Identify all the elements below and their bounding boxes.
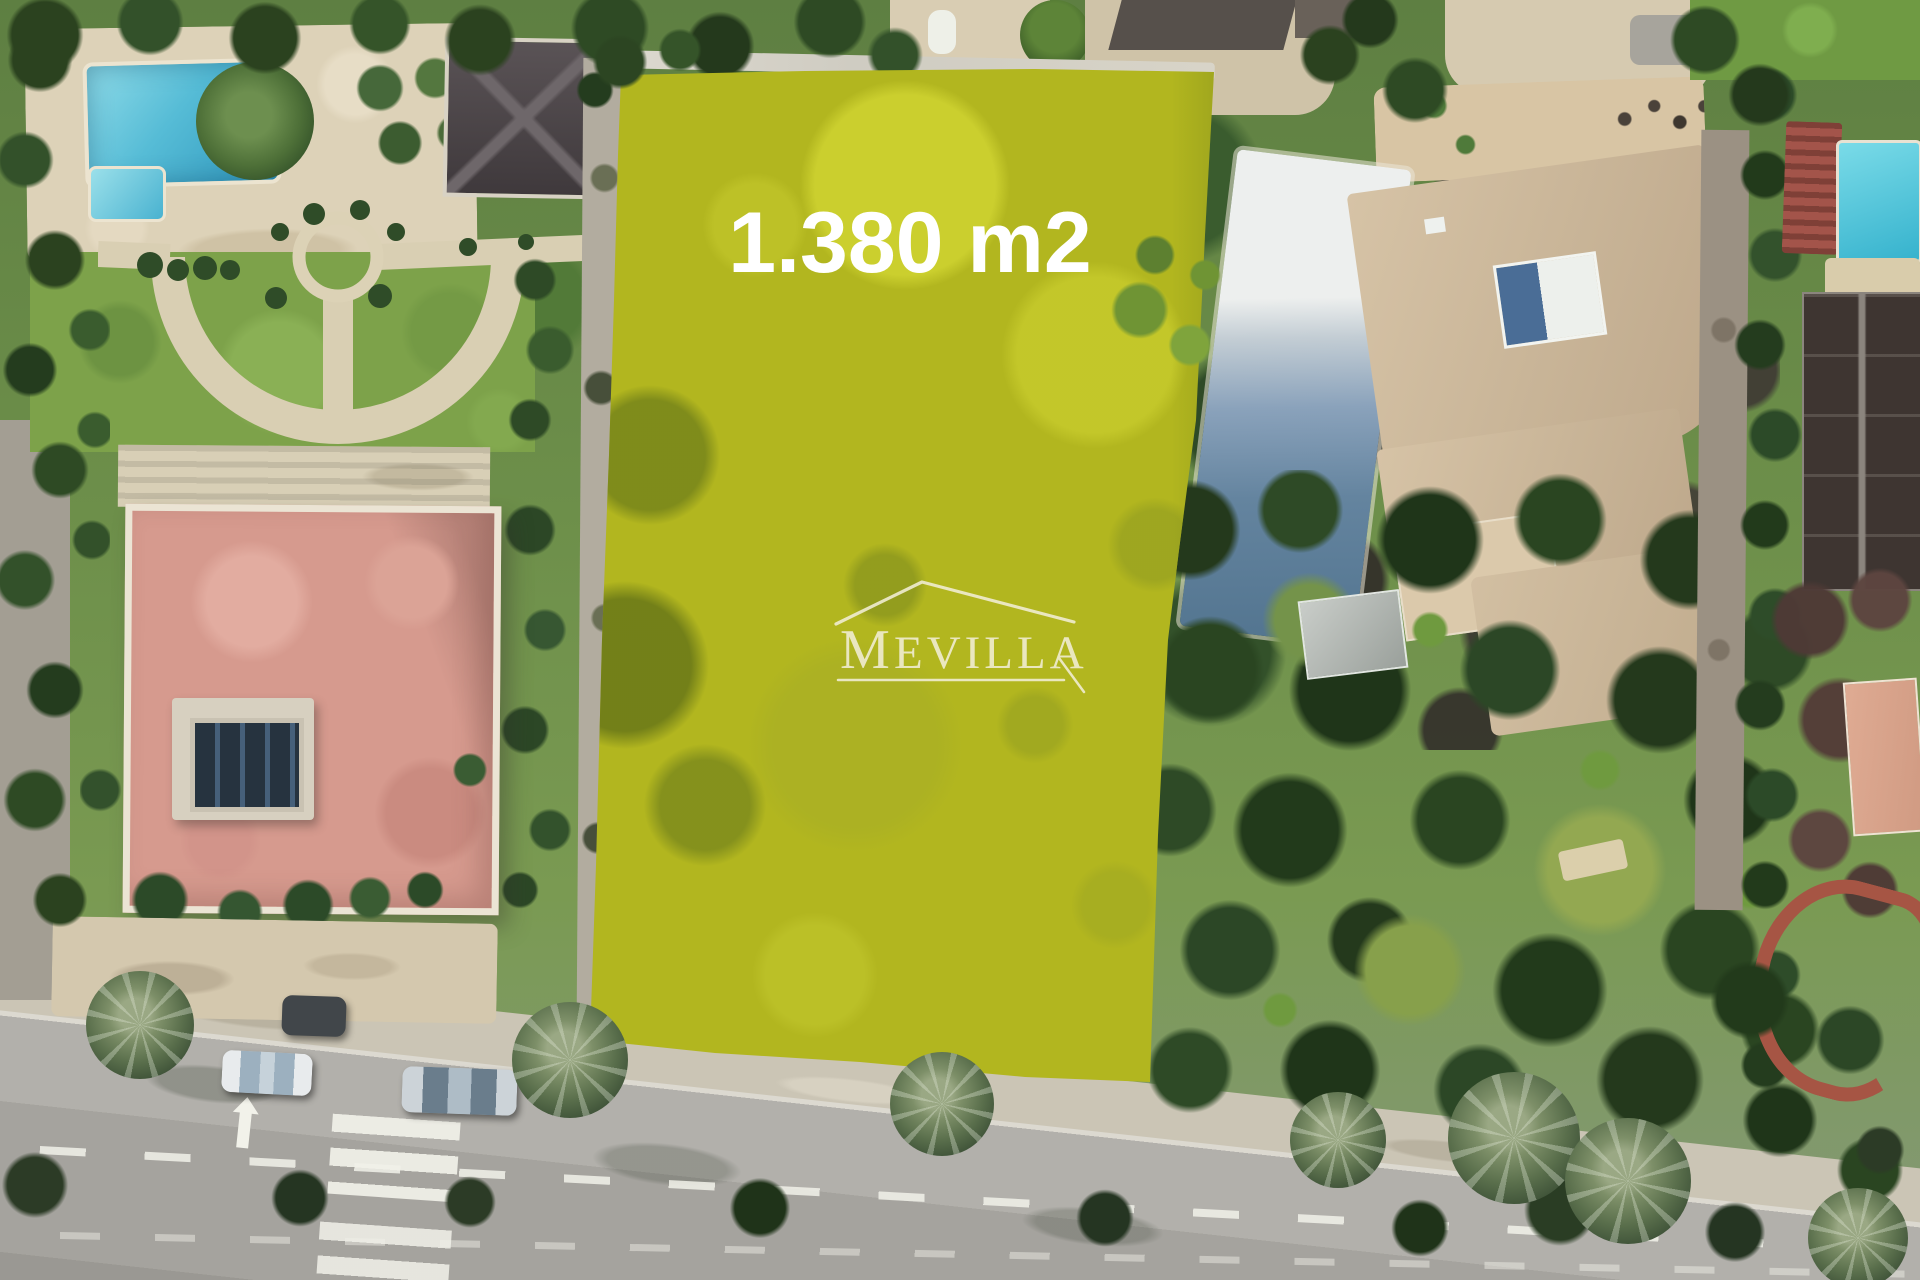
dark-roof [1802,292,1920,591]
zebra-crosswalk [316,1221,452,1280]
roof-vent [1424,217,1446,235]
aerial-satellite-photo: 1.380 m2 MEVILLA [0,0,1920,1280]
parked-van-dark [281,995,346,1037]
far-right-properties [1690,0,1920,1280]
pink-tile-roof [1843,678,1920,837]
zebra-crosswalk [327,1114,460,1203]
parked-car-white [221,1050,313,1097]
parked-car-silver [401,1066,518,1116]
villa-terrace-steps [118,445,490,510]
watermark-roof-icon [836,582,1074,624]
roof-skylight [1493,251,1608,349]
driveway [51,916,498,1024]
watermark-brand-text: MEVILLA [840,619,1088,681]
garden-shed [1298,589,1409,680]
mevilla-watermark: MEVILLA [812,558,1112,708]
plot-area-label: 1.380 m2 [690,200,1130,286]
